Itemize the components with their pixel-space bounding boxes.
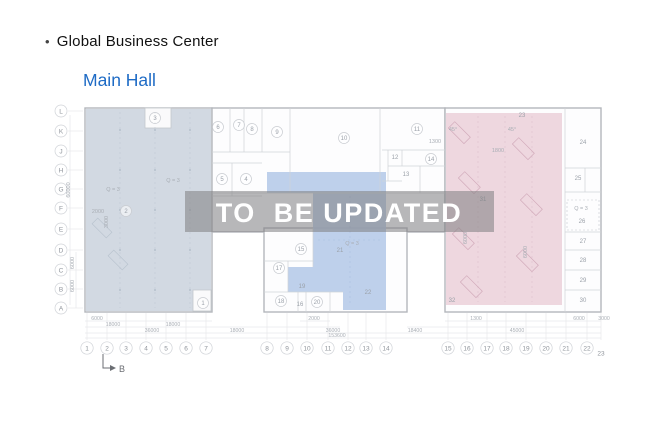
svg-text:1300: 1300: [429, 139, 441, 145]
room-number-27: 27: [580, 239, 587, 245]
svg-text:6000: 6000: [523, 246, 529, 258]
room-number-32: 32: [449, 298, 456, 304]
svg-text:153600: 153600: [328, 333, 345, 339]
svg-text:4: 4: [144, 345, 148, 352]
svg-text:2: 2: [105, 345, 109, 352]
room-number-25: 25: [575, 176, 582, 182]
svg-text:3000: 3000: [104, 216, 110, 228]
svg-text:E: E: [59, 226, 64, 233]
svg-text:10: 10: [303, 345, 311, 352]
svg-text:16: 16: [463, 345, 471, 352]
room-number-28: 28: [580, 258, 587, 264]
svg-text:Q = 3: Q = 3: [345, 241, 359, 247]
room-number-15: 15: [298, 247, 305, 253]
svg-text:B: B: [59, 286, 63, 293]
svg-text:15: 15: [444, 345, 452, 352]
room-number-21: 21: [337, 248, 344, 254]
row-axis-labels: LKJHGFEDCBA: [55, 105, 83, 314]
svg-text:3000: 3000: [598, 316, 610, 322]
room-number-20: 20: [314, 300, 321, 306]
svg-text:2000: 2000: [92, 209, 104, 215]
svg-text:Q = 3: Q = 3: [166, 178, 180, 184]
svg-text:18: 18: [502, 345, 510, 352]
svg-text:13: 13: [362, 345, 370, 352]
svg-text:22: 22: [583, 345, 591, 352]
svg-text:A: A: [59, 305, 64, 312]
svg-text:J: J: [59, 148, 62, 155]
svg-text:Q = 3: Q = 3: [574, 206, 588, 212]
svg-text:6000: 6000: [91, 316, 103, 322]
svg-text:F: F: [59, 205, 63, 212]
svg-text:7: 7: [204, 345, 208, 352]
room-number-18: 18: [278, 299, 285, 305]
svg-text:8: 8: [265, 345, 269, 352]
svg-text:1800: 1800: [492, 148, 504, 154]
svg-text:1: 1: [85, 345, 89, 352]
svg-text:6: 6: [184, 345, 188, 352]
room-number-24: 24: [580, 140, 587, 146]
section-marker: B: [103, 354, 125, 374]
section-marker-label: B: [119, 364, 125, 374]
svg-text:45°: 45°: [508, 127, 516, 133]
svg-text:18000: 18000: [106, 322, 121, 328]
room-number-14: 14: [428, 157, 435, 163]
svg-text:9: 9: [285, 345, 289, 352]
room-number-17: 17: [276, 266, 283, 272]
svg-text:23: 23: [597, 350, 605, 357]
svg-text:45000: 45000: [510, 328, 525, 334]
svg-text:G: G: [58, 186, 63, 193]
svg-text:6000: 6000: [70, 280, 76, 292]
watermark-text: TO BE UPDATED: [216, 198, 463, 228]
svg-text:18000: 18000: [166, 322, 181, 328]
room-number-12: 12: [392, 155, 399, 161]
svg-text:19: 19: [522, 345, 530, 352]
watermark: TO BE UPDATED: [185, 191, 494, 232]
svg-text:K: K: [59, 128, 64, 135]
svg-text:2000: 2000: [308, 316, 320, 322]
room-number-22: 22: [365, 290, 372, 296]
room-number-30: 30: [580, 298, 587, 304]
svg-text:5: 5: [164, 345, 168, 352]
svg-text:20: 20: [542, 345, 550, 352]
room-number-19: 19: [299, 284, 306, 290]
svg-text:L: L: [59, 108, 63, 115]
room-number-10: 10: [341, 136, 348, 142]
room-number-23: 23: [519, 113, 526, 119]
svg-text:36000: 36000: [145, 328, 160, 334]
svg-text:18400: 18400: [408, 328, 423, 334]
bottom-dimensions: 6000180001800036000180002000360001536001…: [91, 316, 610, 339]
svg-text:1300: 1300: [470, 316, 482, 322]
svg-text:H: H: [59, 167, 64, 174]
svg-text:14: 14: [382, 345, 390, 352]
svg-text:60000: 60000: [66, 182, 72, 197]
svg-text:6000: 6000: [573, 316, 585, 322]
svg-text:D: D: [59, 247, 64, 254]
svg-text:18000: 18000: [230, 328, 245, 334]
svg-text:6000: 6000: [463, 232, 469, 244]
floor-plan: LKJHGFEDCBA 1234567891011121314151617181…: [0, 0, 660, 440]
room-number-16: 16: [297, 302, 304, 308]
room-number-26: 26: [579, 219, 586, 225]
svg-text:6000: 6000: [70, 257, 76, 269]
svg-text:C: C: [59, 267, 64, 274]
room-number-11: 11: [414, 127, 421, 133]
svg-text:17: 17: [483, 345, 491, 352]
svg-text:11: 11: [325, 345, 332, 352]
svg-text:12: 12: [344, 345, 352, 352]
room-number-13: 13: [403, 172, 410, 178]
svg-text:3: 3: [124, 345, 128, 352]
room-number-29: 29: [580, 278, 587, 284]
svg-text:Q = 3: Q = 3: [106, 187, 120, 193]
svg-text:21: 21: [562, 345, 570, 352]
svg-text:45°: 45°: [449, 127, 457, 133]
